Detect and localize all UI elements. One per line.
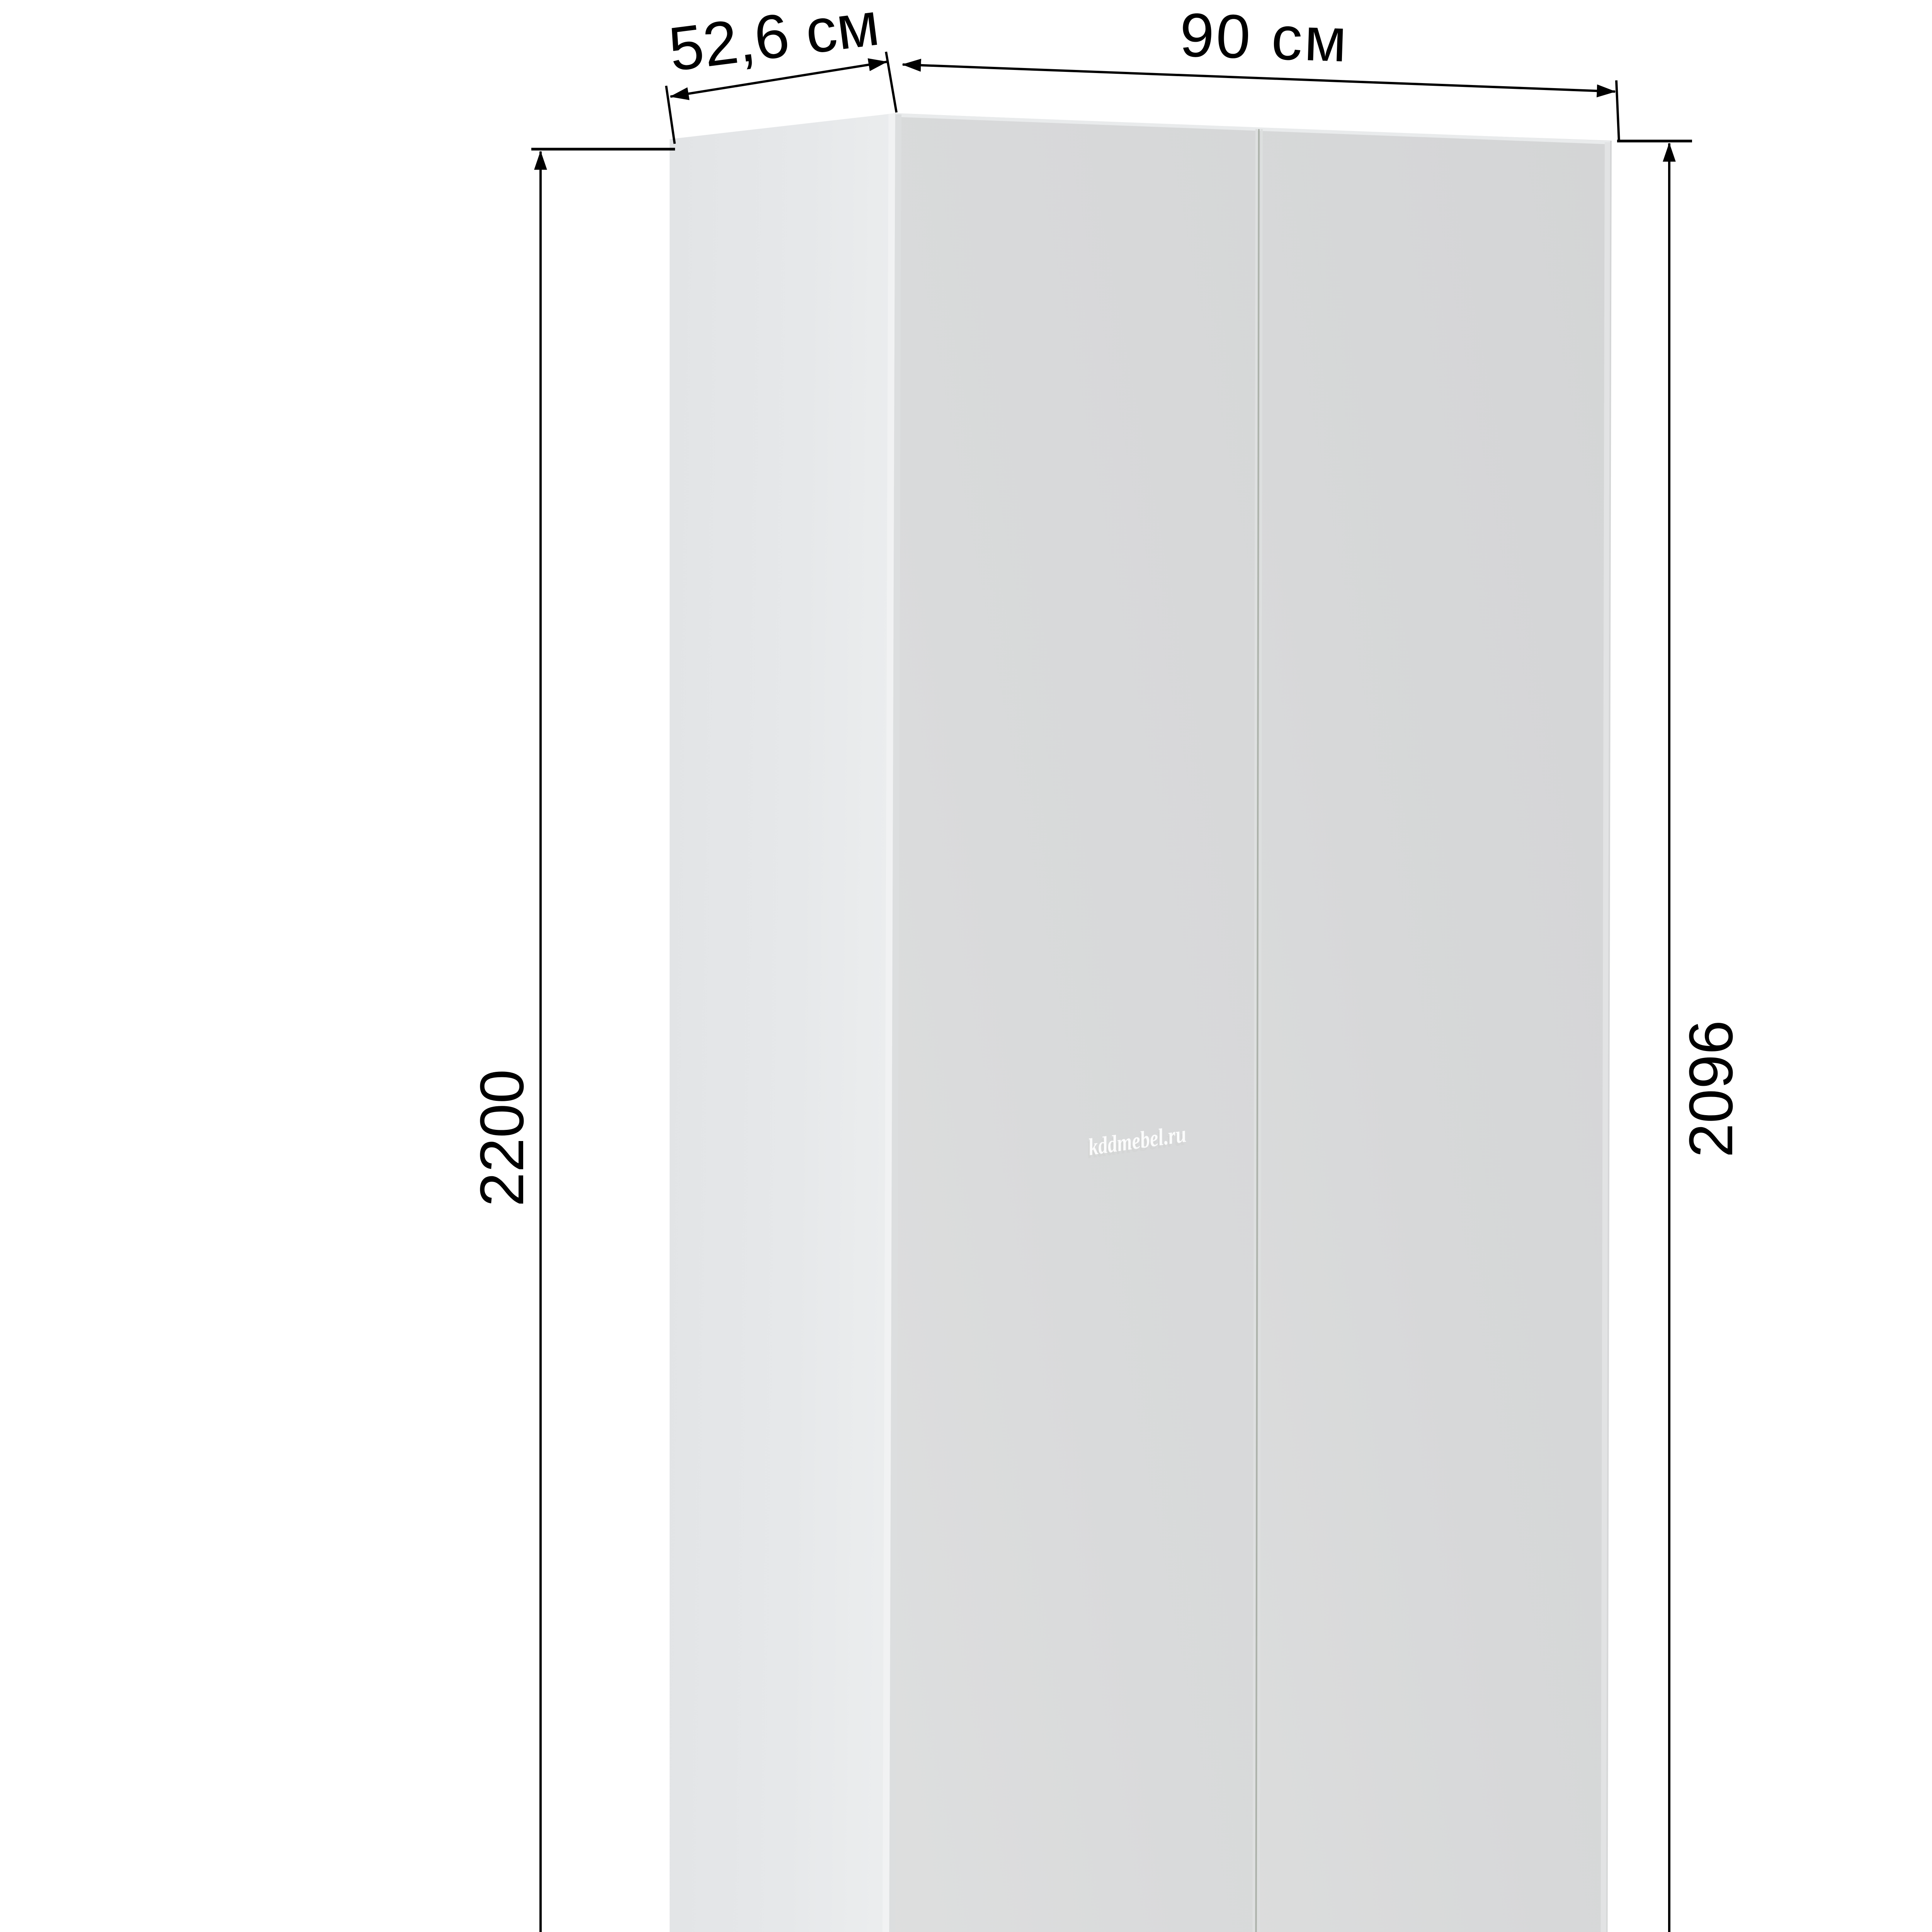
svg-text:90 см: 90 см: [1179, 0, 1350, 75]
svg-text:2096: 2096: [1676, 1020, 1745, 1158]
svg-text:2200: 2200: [467, 1069, 536, 1207]
